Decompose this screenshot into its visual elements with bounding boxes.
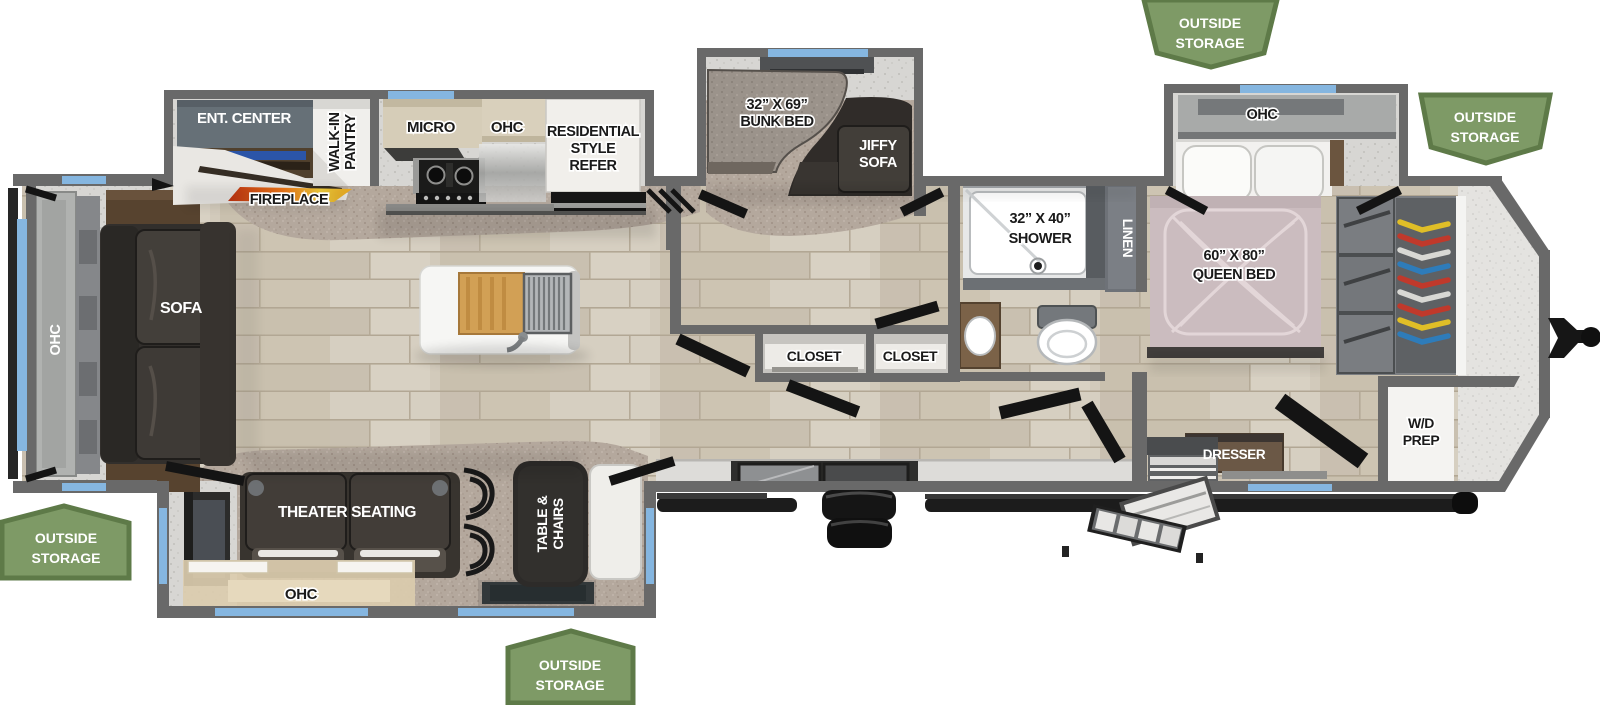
svg-text:THEATER SEATING: THEATER SEATING <box>278 504 416 521</box>
svg-text:REFER: REFER <box>569 158 617 174</box>
svg-text:SHOWER: SHOWER <box>1009 231 1073 247</box>
svg-text:OUTSIDE: OUTSIDE <box>1454 109 1516 125</box>
svg-text:STORAGE: STORAGE <box>32 550 101 566</box>
svg-text:OHC: OHC <box>491 119 524 136</box>
svg-text:SOFA: SOFA <box>859 155 898 171</box>
svg-text:OUTSIDE: OUTSIDE <box>539 657 601 673</box>
svg-text:STORAGE: STORAGE <box>536 677 605 693</box>
svg-text:DRESSER: DRESSER <box>1203 447 1266 462</box>
svg-text:FIREPLACE: FIREPLACE <box>250 192 329 208</box>
svg-text:60” X 80”: 60” X 80” <box>1204 248 1265 264</box>
svg-text:W/D: W/D <box>1408 415 1434 431</box>
svg-text:JIFFY: JIFFY <box>859 138 897 154</box>
svg-text:CLOSET: CLOSET <box>883 348 938 364</box>
svg-text:PREP: PREP <box>1403 432 1440 448</box>
svg-text:LINEN: LINEN <box>1120 219 1135 258</box>
svg-text:RESIDENTIAL: RESIDENTIAL <box>547 124 640 140</box>
svg-text:BUNK BED: BUNK BED <box>740 114 813 130</box>
svg-text:OUTSIDE: OUTSIDE <box>35 530 97 546</box>
svg-text:CLOSET: CLOSET <box>787 348 842 364</box>
svg-text:32” X 69”: 32” X 69” <box>747 97 808 113</box>
svg-text:STORAGE: STORAGE <box>1176 35 1245 51</box>
svg-text:ENT. CENTER: ENT. CENTER <box>197 110 292 127</box>
svg-text:32” X 40”: 32” X 40” <box>1010 211 1071 227</box>
svg-text:STORAGE: STORAGE <box>1451 129 1520 145</box>
svg-text:SOFA: SOFA <box>160 300 203 317</box>
svg-text:OHC: OHC <box>48 324 64 356</box>
svg-text:OHC: OHC <box>1246 107 1278 123</box>
svg-text:TABLE &: TABLE & <box>534 495 550 552</box>
svg-text:CHAIRS: CHAIRS <box>550 498 566 549</box>
svg-text:OUTSIDE: OUTSIDE <box>1179 15 1241 31</box>
svg-text:QUEEN BED: QUEEN BED <box>1193 267 1276 283</box>
svg-text:PANTRY: PANTRY <box>343 113 359 169</box>
svg-text:STYLE: STYLE <box>571 141 616 157</box>
svg-text:OHC: OHC <box>285 586 318 603</box>
svg-text:WALK-IN: WALK-IN <box>327 112 343 171</box>
svg-text:MICRO: MICRO <box>407 119 456 136</box>
